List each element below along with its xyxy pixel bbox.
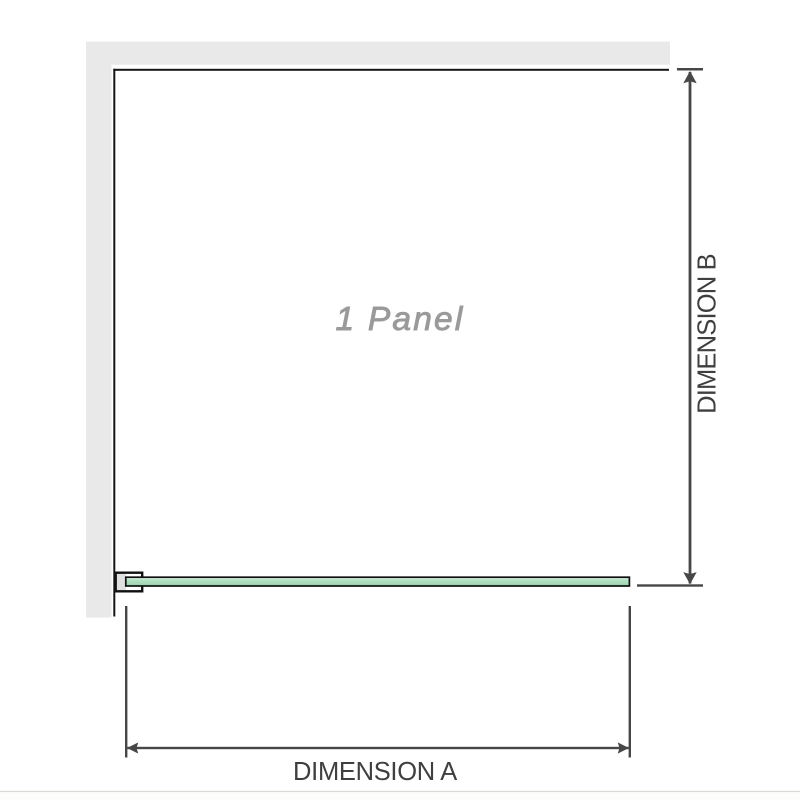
svg-text:1 Panel: 1 Panel xyxy=(335,301,464,338)
svg-text:DIMENSION B: DIMENSION B xyxy=(693,254,721,414)
svg-text:DIMENSION A: DIMENSION A xyxy=(293,758,457,786)
